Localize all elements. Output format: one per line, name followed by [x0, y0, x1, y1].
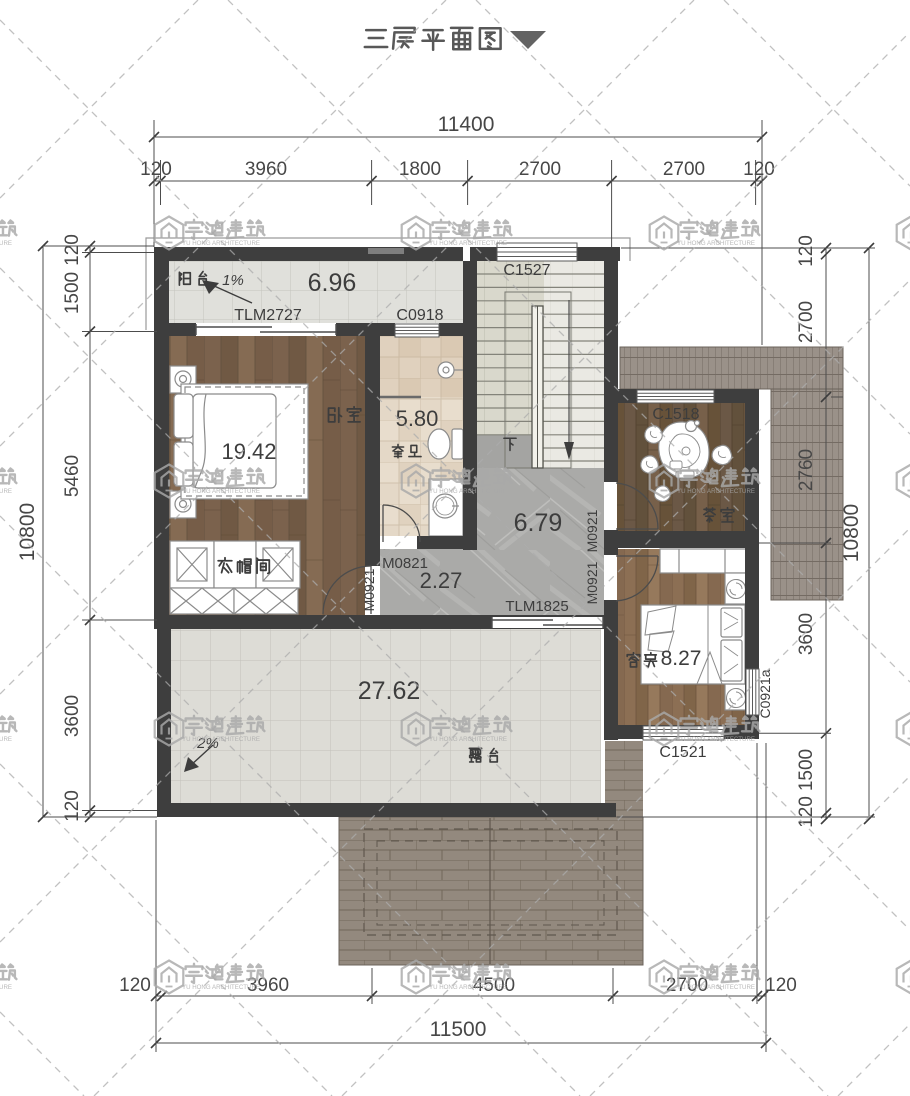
svg-text:C1518: C1518 [652, 406, 699, 423]
svg-text:120: 120 [119, 975, 151, 996]
svg-text:120: 120 [765, 975, 797, 996]
svg-text:C1521: C1521 [659, 744, 706, 761]
svg-text:C0918: C0918 [396, 307, 443, 324]
svg-text:2.27: 2.27 [420, 568, 463, 593]
svg-text:11500: 11500 [430, 1018, 487, 1041]
svg-text:C0921a: C0921a [757, 669, 773, 718]
svg-text:120: 120 [743, 159, 775, 180]
svg-text:10800: 10800 [840, 504, 863, 562]
svg-text:YU HONG ARCHITECTURE: YU HONG ARCHITECTURE [429, 984, 508, 991]
svg-text:M0921: M0921 [361, 568, 377, 611]
svg-text:TLM2727: TLM2727 [234, 307, 302, 324]
svg-text:3960: 3960 [245, 159, 287, 180]
svg-text:2700: 2700 [663, 159, 705, 180]
svg-text:C1527: C1527 [503, 262, 550, 279]
svg-text:YU HONG ARCHITECTURE: YU HONG ARCHITECTURE [677, 240, 756, 247]
svg-text:10800: 10800 [16, 503, 39, 561]
svg-text:1500: 1500 [62, 272, 83, 314]
svg-text:5460: 5460 [62, 455, 83, 497]
svg-text:8.27: 8.27 [661, 647, 702, 670]
svg-text:YU HONG ARCHITECTURE: YU HONG ARCHITECTURE [429, 240, 508, 247]
svg-text:YU HONG ARCHITECTURE: YU HONG ARCHITECTURE [677, 984, 756, 991]
svg-text:YU HONG ARCHITECTURE: YU HONG ARCHITECTURE [182, 240, 261, 247]
svg-text:27.62: 27.62 [358, 677, 421, 705]
svg-text:19.42: 19.42 [221, 439, 276, 464]
svg-text:YU HONG ARCHITECTURE: YU HONG ARCHITECTURE [677, 736, 756, 743]
svg-text:TLM1825: TLM1825 [505, 598, 568, 615]
svg-text:2700: 2700 [796, 301, 817, 343]
svg-text:YU HONG ARCHITECTURE: YU HONG ARCHITECTURE [182, 736, 261, 743]
svg-text:YU HONG ARCHITECTURE: YU HONG ARCHITECTURE [182, 488, 261, 495]
svg-text:YU HONG ARCHITECTURE: YU HONG ARCHITECTURE [0, 488, 13, 495]
svg-text:120: 120 [62, 234, 83, 266]
svg-text:YU HONG ARCHITECTURE: YU HONG ARCHITECTURE [0, 240, 13, 247]
svg-text:YU HONG ARCHITECTURE: YU HONG ARCHITECTURE [429, 736, 508, 743]
svg-text:6.96: 6.96 [308, 269, 357, 297]
svg-text:1%: 1% [222, 272, 244, 289]
svg-text:YU HONG ARCHITECTURE: YU HONG ARCHITECTURE [0, 984, 13, 991]
svg-text:YU HONG ARCHITECTURE: YU HONG ARCHITECTURE [0, 736, 13, 743]
svg-text:3600: 3600 [62, 695, 83, 737]
svg-text:YU HONG ARCHITECTURE: YU HONG ARCHITECTURE [182, 984, 261, 991]
svg-text:YU HONG ARCHITECTURE: YU HONG ARCHITECTURE [677, 488, 756, 495]
svg-text:3600: 3600 [796, 613, 817, 655]
svg-text:2760: 2760 [796, 449, 817, 491]
svg-text:1500: 1500 [796, 749, 817, 791]
svg-text:M0921: M0921 [584, 509, 600, 552]
svg-text:120: 120 [796, 235, 817, 267]
svg-text:6.79: 6.79 [514, 509, 563, 537]
svg-text:11400: 11400 [438, 113, 495, 136]
svg-text:5.80: 5.80 [396, 406, 439, 431]
svg-text:YU HONG ARCHITECTURE: YU HONG ARCHITECTURE [429, 488, 508, 495]
svg-text:120: 120 [796, 796, 817, 828]
